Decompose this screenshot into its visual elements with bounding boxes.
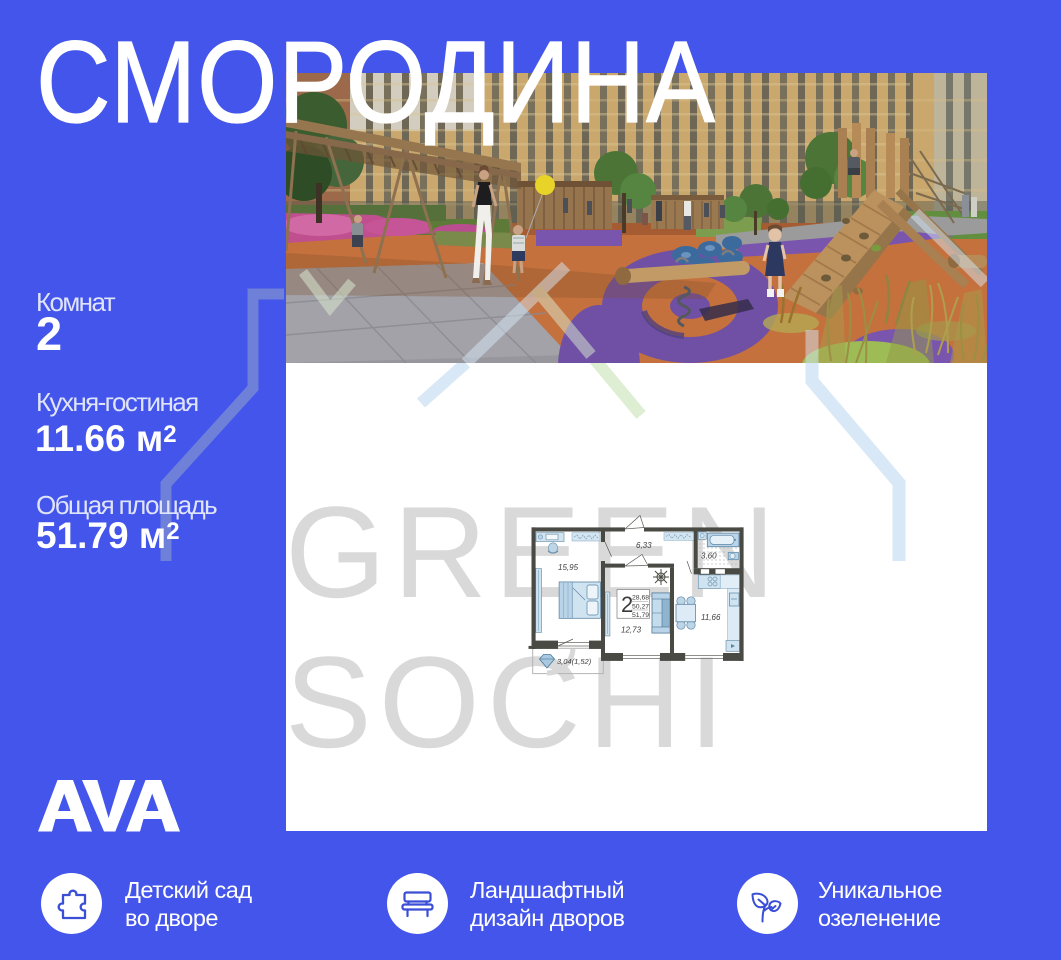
svg-text:3,04(1,52): 3,04(1,52) <box>557 657 592 666</box>
svg-text:51,79: 51,79 <box>632 612 649 619</box>
svg-text:12,73: 12,73 <box>621 625 642 634</box>
svg-text:6,33: 6,33 <box>636 541 652 550</box>
svg-text:11,66: 11,66 <box>701 613 721 622</box>
svg-text:50,27: 50,27 <box>632 604 649 611</box>
svg-text:15,95: 15,95 <box>558 563 579 572</box>
svg-text:3,60: 3,60 <box>701 552 717 561</box>
svg-text:28,68: 28,68 <box>632 595 649 602</box>
